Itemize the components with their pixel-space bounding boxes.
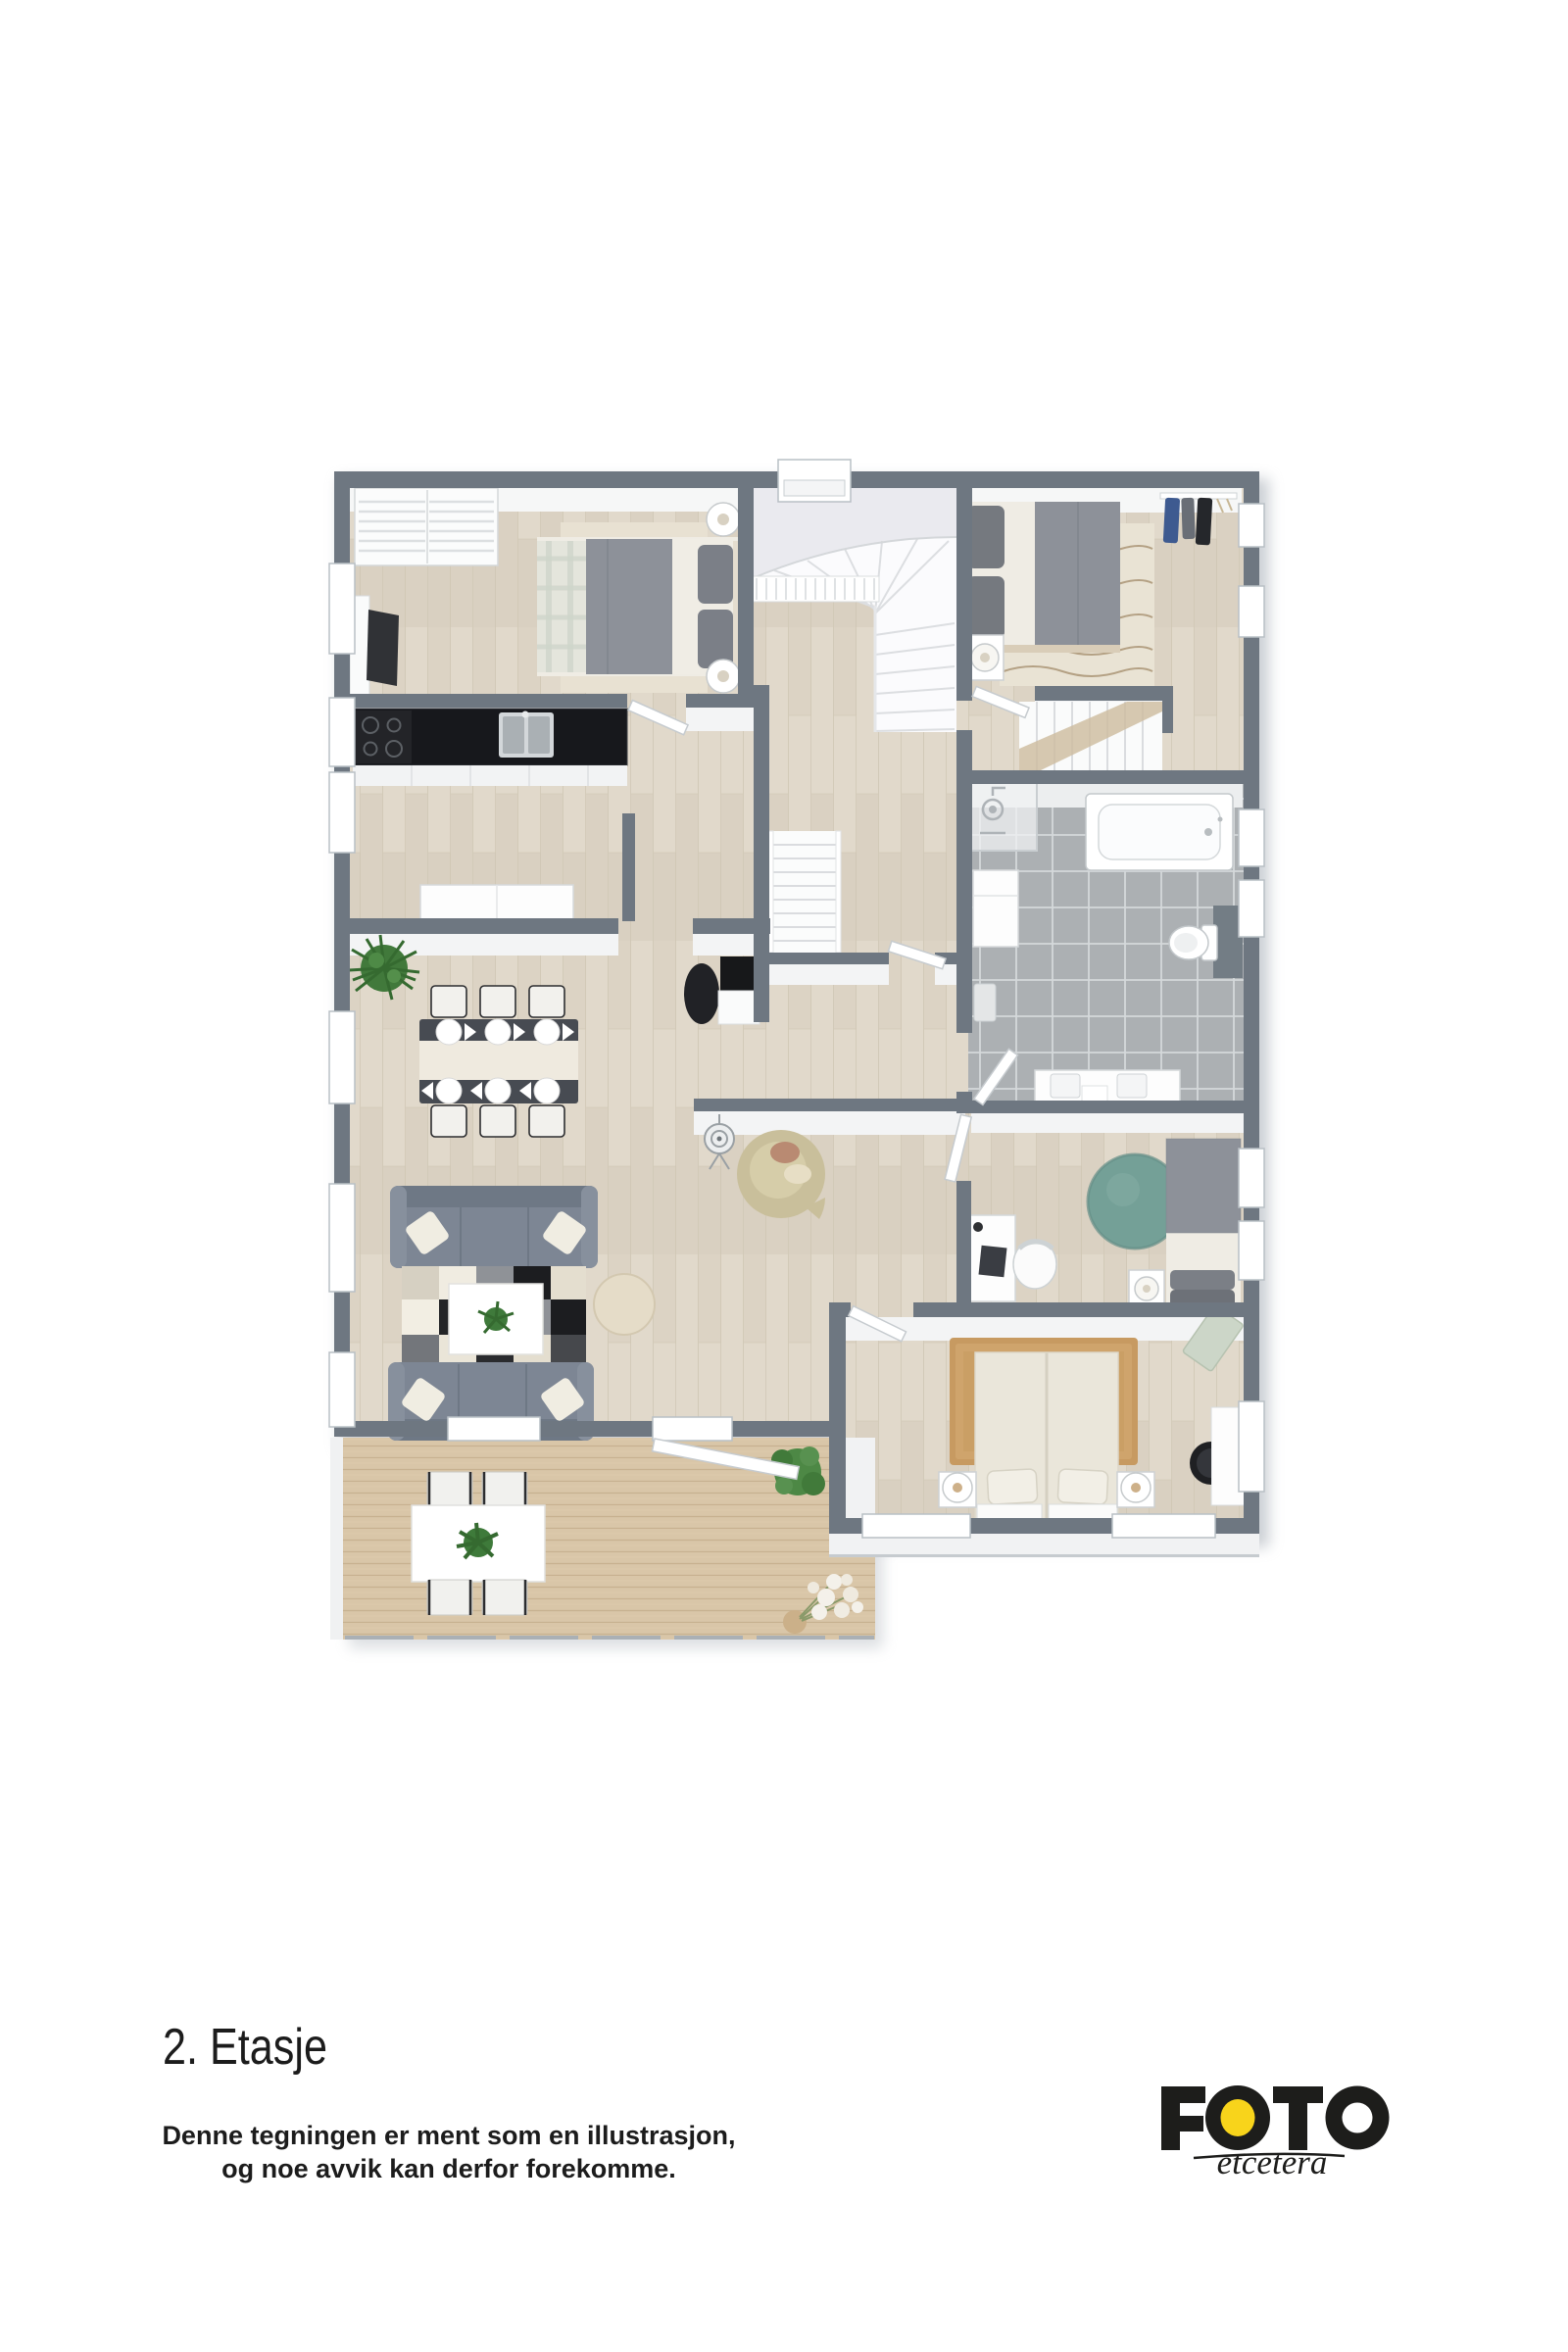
svg-text:2. Etasje: 2. Etasje <box>163 2019 327 2076</box>
svg-text:etcetera: etcetera <box>1217 2143 1328 2181</box>
svg-text:Denne tegningen er ment som en: Denne tegningen er ment som en illustras… <box>162 2121 735 2150</box>
svg-text:og noe avvik kan derfor foreko: og noe avvik kan derfor forekomme. <box>221 2154 676 2183</box>
